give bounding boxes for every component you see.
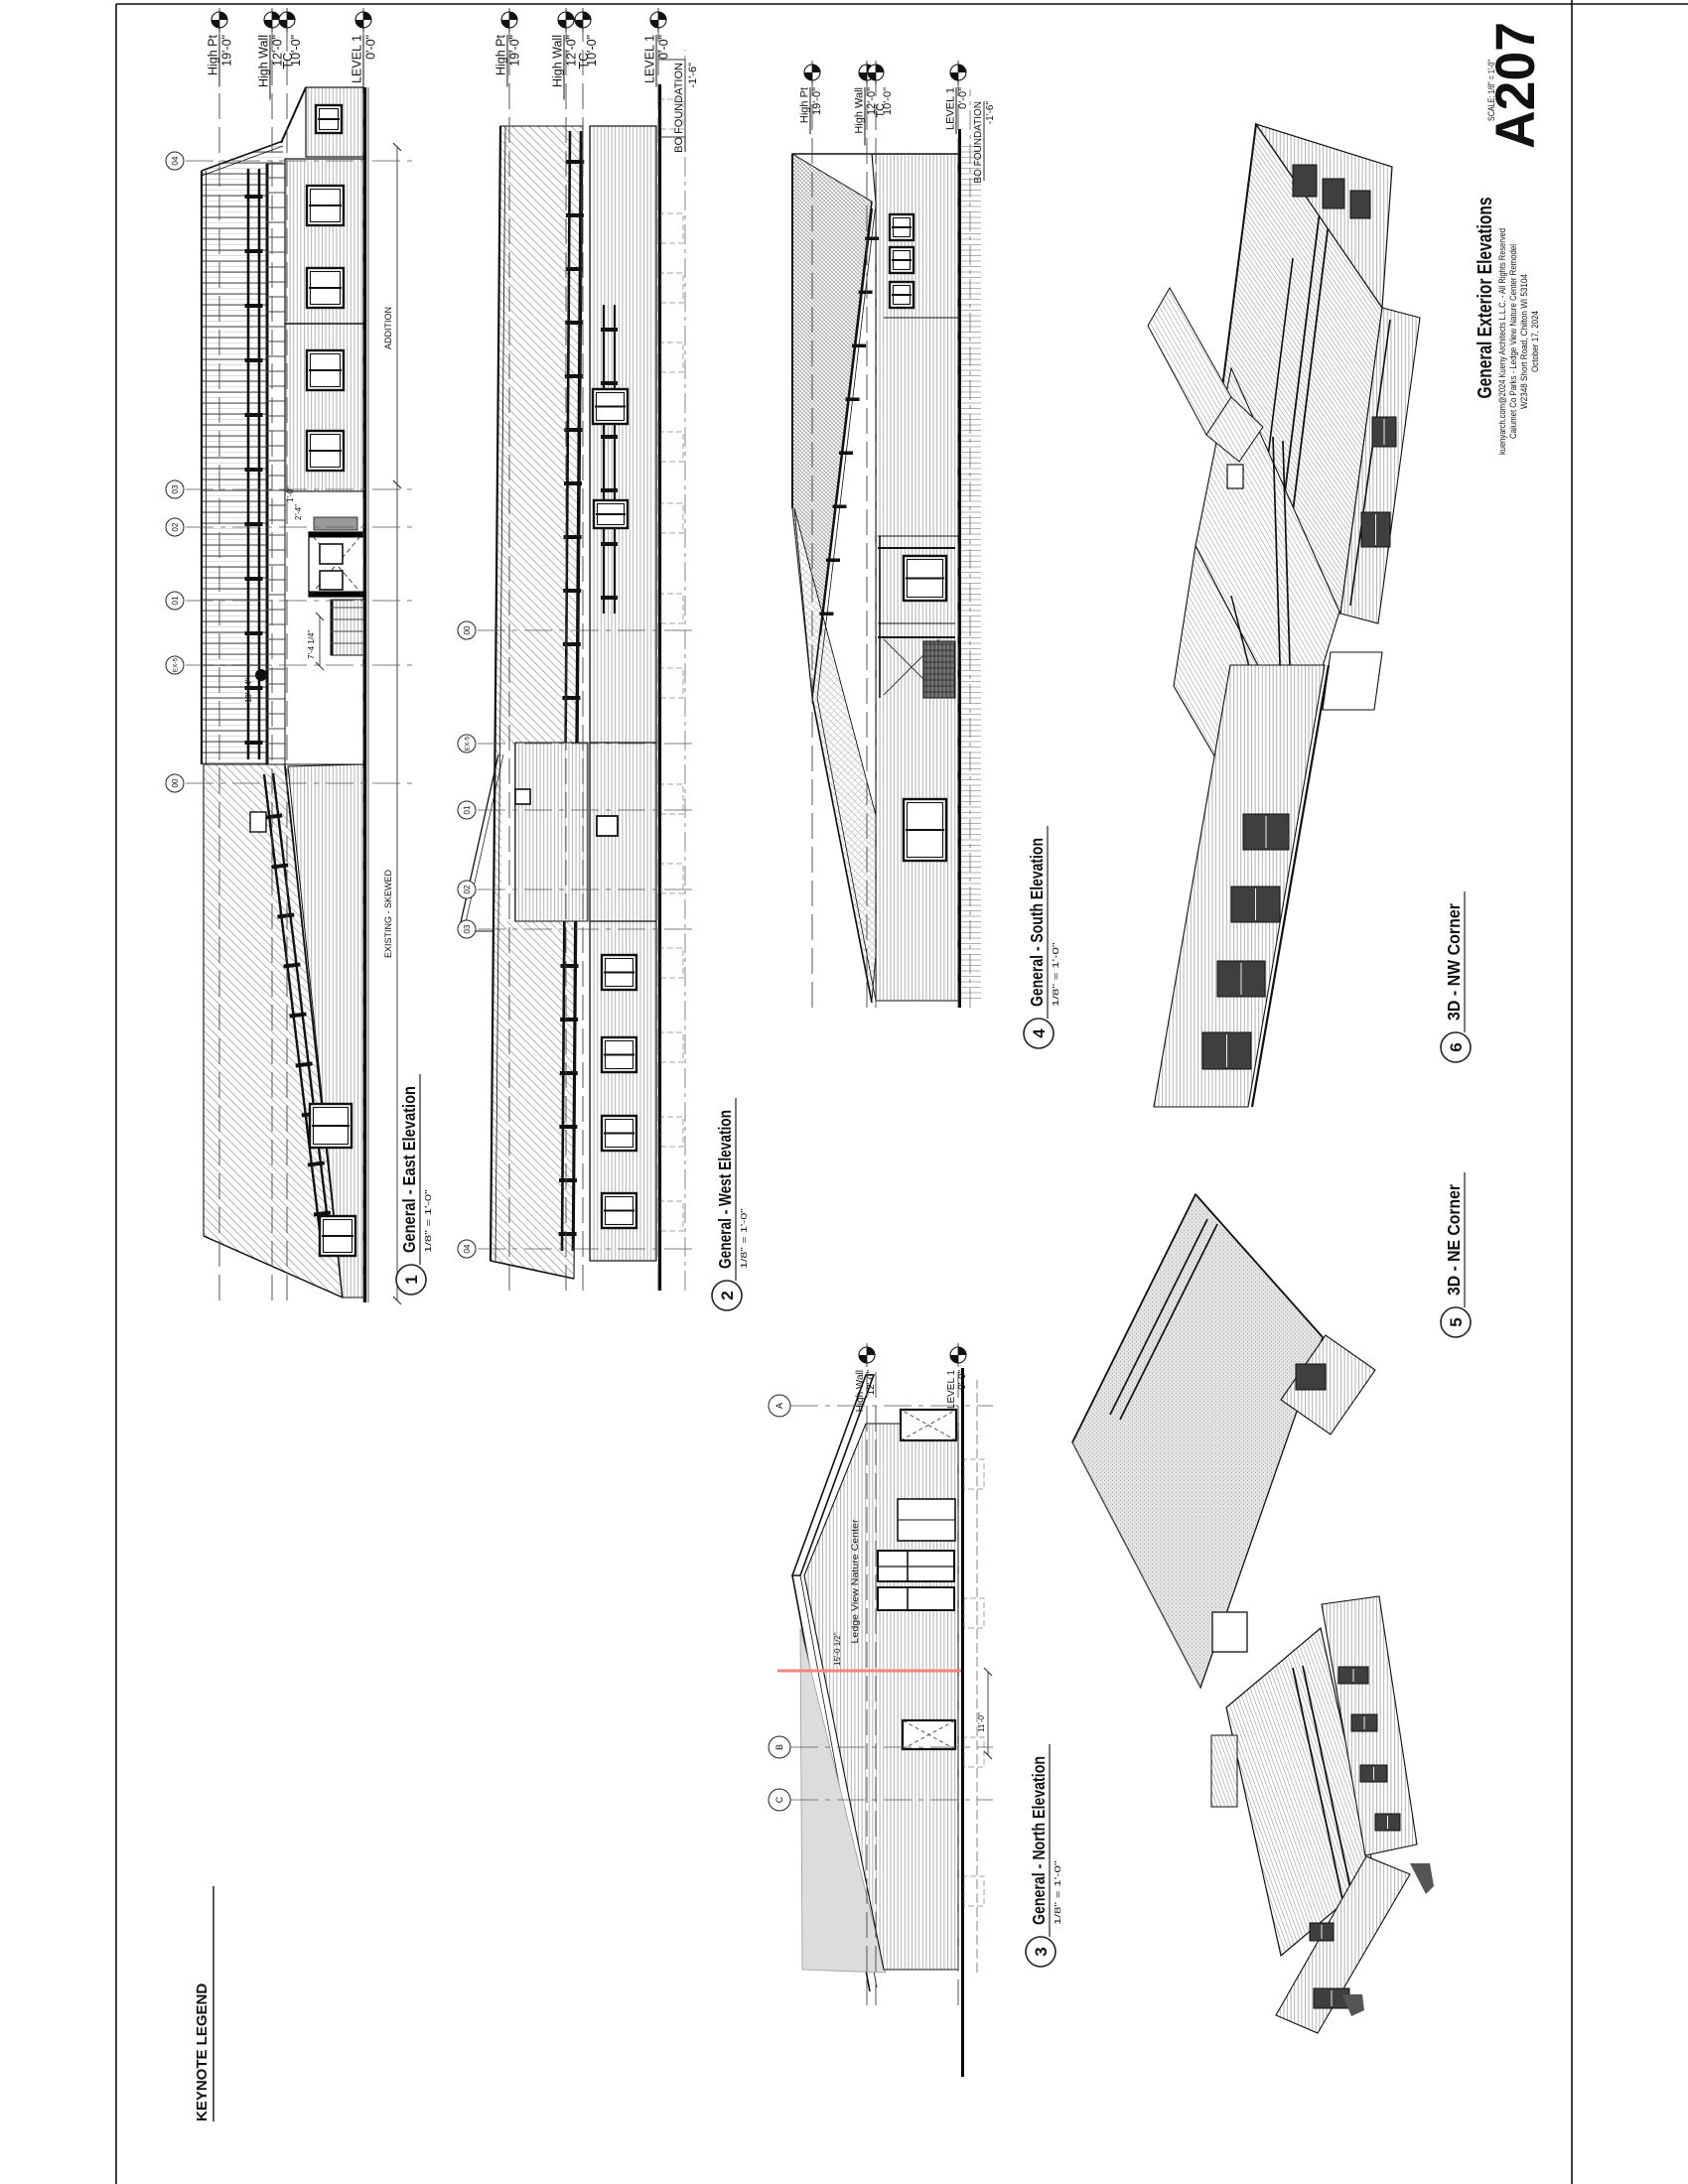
svg-text:1/8" = 1'-0": 1/8" = 1'-0" [1053, 1860, 1062, 1925]
svg-text:1/8" = 1'-0": 1/8" = 1'-0" [1051, 942, 1060, 1007]
svg-text:1/8" = 1'-0": 1/8" = 1'-0" [739, 1208, 749, 1269]
svg-text:BO FOUNDATION: BO FOUNDATION [973, 101, 984, 184]
svg-text:General Exterior Elevations: General Exterior Elevations [1475, 198, 1496, 399]
svg-text:01: 01 [171, 596, 180, 605]
svg-text:19'-0": 19'-0" [508, 35, 522, 67]
svg-text:EXISTING - SKEWED: EXISTING - SKEWED [383, 869, 393, 958]
svg-text:02: 02 [171, 522, 180, 531]
svg-text:General - West Elevation: General - West Elevation [715, 1110, 735, 1269]
svg-text:15'-0 1/2": 15'-0 1/2" [833, 1632, 842, 1666]
svg-text:-1'-6": -1'-6" [985, 101, 996, 125]
svg-text:19'-0": 19'-0" [811, 87, 823, 115]
svg-text:0'-0": 0'-0" [657, 35, 671, 60]
svg-text:0'-0": 0'-0" [364, 35, 378, 60]
svg-text:W2348 Short Road, Chilton WI 5: W2348 Short Road, Chilton WI 53104 [1519, 274, 1529, 409]
svg-text:kuenyarch.com@2024 Kueny Archi: kuenyarch.com@2024 Kueny Architects L.L.… [1497, 228, 1507, 455]
svg-text:6: 6 [1447, 1042, 1466, 1051]
svg-text:ADDITION: ADDITION [383, 307, 393, 349]
svg-text:BO FOUNDATION: BO FOUNDATION [673, 63, 685, 153]
svg-text:Ledge View Nature Center: Ledge View Nature Center [850, 1520, 861, 1644]
svg-text:10'-0": 10'-0" [882, 87, 894, 115]
svg-text:A207: A207 [1483, 22, 1546, 149]
svg-text:01: 01 [463, 805, 472, 814]
svg-text:General - South Elevation: General - South Elevation [1027, 838, 1047, 1007]
svg-text:A: A [774, 1403, 784, 1409]
svg-text:Calumet Co Parks - Ledge View: Calumet Co Parks - Ledge View Nature Cen… [1508, 244, 1518, 439]
svg-text:High Wall: High Wall [855, 1370, 866, 1412]
svg-text:LEVEL 1: LEVEL 1 [945, 87, 957, 130]
svg-text:19'-0": 19'-0" [220, 35, 234, 67]
svg-text:00: 00 [463, 625, 472, 634]
svg-text:02: 02 [463, 885, 472, 893]
svg-text:0'-0": 0'-0" [957, 1370, 968, 1390]
svg-text:10' - 4": 10' - 4" [244, 678, 253, 703]
svg-text:High Wall: High Wall [257, 35, 271, 87]
svg-text:B: B [774, 1744, 784, 1750]
svg-text:3: 3 [1032, 1947, 1051, 1956]
svg-text:10'-0": 10'-0" [585, 35, 599, 67]
svg-text:General - North Elevation: General - North Elevation [1029, 1756, 1049, 1925]
svg-text:1: 1 [402, 1275, 421, 1284]
svg-text:4: 4 [1030, 1028, 1049, 1038]
svg-text:High Pt: High Pt [799, 87, 811, 123]
svg-text:5: 5 [1447, 1317, 1466, 1326]
svg-text:KEYNOTE LEGEND: KEYNOTE LEGEND [194, 1983, 211, 2121]
svg-text:General - East Elevation: General - East Elevation [399, 1086, 419, 1253]
svg-text:12'-0": 12'-0" [866, 1370, 877, 1396]
svg-text:High Pt: High Pt [207, 34, 220, 75]
svg-text:3D - NW Corner: 3D - NW Corner [1444, 903, 1464, 1021]
svg-text:2'-4": 2'-4" [294, 504, 303, 520]
svg-text:03: 03 [463, 924, 472, 933]
svg-text:LEVEL 1: LEVEL 1 [946, 1370, 957, 1410]
svg-text:LEVEL 1: LEVEL 1 [643, 35, 657, 83]
svg-text:EX-5: EX-5 [172, 657, 179, 672]
svg-text:0'-0": 0'-0" [957, 87, 969, 109]
svg-text:EX-5: EX-5 [464, 736, 471, 751]
svg-text:High Wall: High Wall [551, 35, 565, 87]
svg-text:C: C [774, 1796, 784, 1803]
svg-text:October 17, 2024: October 17, 2024 [1530, 311, 1540, 372]
svg-text:11'-0": 11'-0" [977, 1712, 986, 1732]
svg-text:10'-0": 10'-0" [289, 35, 303, 67]
svg-text:00: 00 [171, 778, 180, 787]
svg-text:04: 04 [171, 156, 180, 165]
svg-text:3D - NE Corner: 3D - NE Corner [1444, 1184, 1464, 1296]
svg-text:High Wall: High Wall [854, 87, 866, 134]
svg-text:2: 2 [718, 1291, 737, 1299]
svg-text:-1'-6": -1'-6" [687, 63, 699, 88]
svg-text:7'-4 1/4": 7'-4 1/4" [307, 630, 316, 659]
svg-text:High Pt: High Pt [494, 34, 508, 75]
svg-text:LEVEL 1: LEVEL 1 [351, 35, 364, 83]
svg-text:04: 04 [463, 1244, 472, 1253]
svg-text:1/8" = 1'-0": 1/8" = 1'-0" [423, 1189, 433, 1253]
svg-text:03: 03 [171, 484, 180, 493]
